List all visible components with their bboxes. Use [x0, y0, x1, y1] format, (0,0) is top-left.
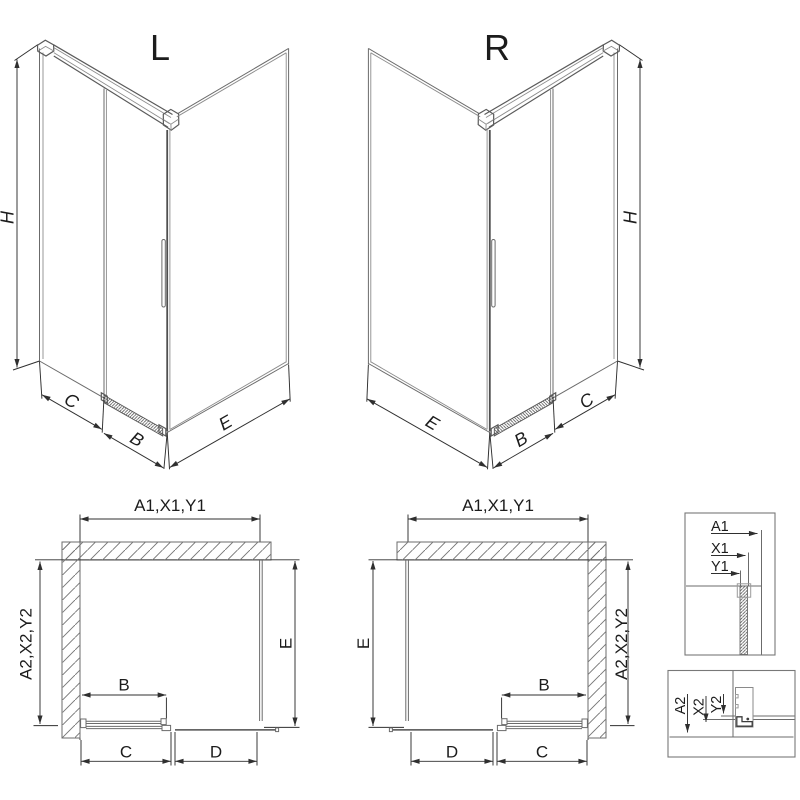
detail-bottom-a2-label: A2: [673, 697, 689, 715]
plan-left-opening-label: D: [210, 743, 222, 762]
iso-right-height-label: H: [621, 210, 641, 224]
plan-right-width-label: A1,X1,Y1: [462, 496, 534, 515]
shower-enclosure-diagram: L H C B E R H E B C A1,X1,Y1 A2,X2,Y2 E …: [0, 0, 800, 800]
plan-left-side-label: E: [277, 638, 296, 649]
detail-top-a1-label: A1: [711, 519, 729, 535]
technical-drawing-page: L H C B E R H E B C A1,X1,Y1 A2,X2,Y2 E …: [0, 0, 800, 800]
detail-top-x1-label: X1: [711, 541, 729, 557]
plan-left-width-label: A1,X1,Y1: [134, 496, 206, 515]
iso-left-title: L: [150, 27, 170, 68]
plan-right-door-label: B: [538, 676, 549, 695]
plan-left-fixed-label: C: [120, 743, 132, 762]
detail-bottom-y2-label: Y2: [709, 696, 725, 714]
plan-left-depth-label: A2,X2,Y2: [17, 608, 36, 680]
plan-right-fixed-label: C: [536, 743, 548, 762]
detail-top-y1-label: Y1: [711, 559, 729, 575]
labels: L H C B E R H E B C A1,X1,Y1 A2,X2,Y2 E …: [0, 27, 729, 762]
iso-left-dim-b-label: B: [127, 428, 147, 451]
wall-hatch-fills: [62, 542, 606, 738]
iso-left-height-label: H: [0, 210, 18, 224]
iso-right-title: R: [484, 27, 510, 68]
plan-right-side-label: E: [354, 638, 373, 649]
iso-right-dim-e-label: E: [422, 411, 443, 435]
plan-left-door-label: B: [118, 676, 129, 695]
iso-right-figure: [367, 40, 644, 469]
detail-top-figure: [685, 513, 775, 655]
detail-bottom-x2-label: X2: [692, 698, 708, 716]
plan-right-opening-label: D: [446, 743, 458, 762]
iso-right-dim-c-label: C: [576, 388, 598, 412]
iso-left-dim-c-label: C: [61, 389, 83, 413]
iso-left-figure: [13, 40, 290, 469]
plan-right-depth-label: A2,X2,Y2: [612, 608, 631, 680]
